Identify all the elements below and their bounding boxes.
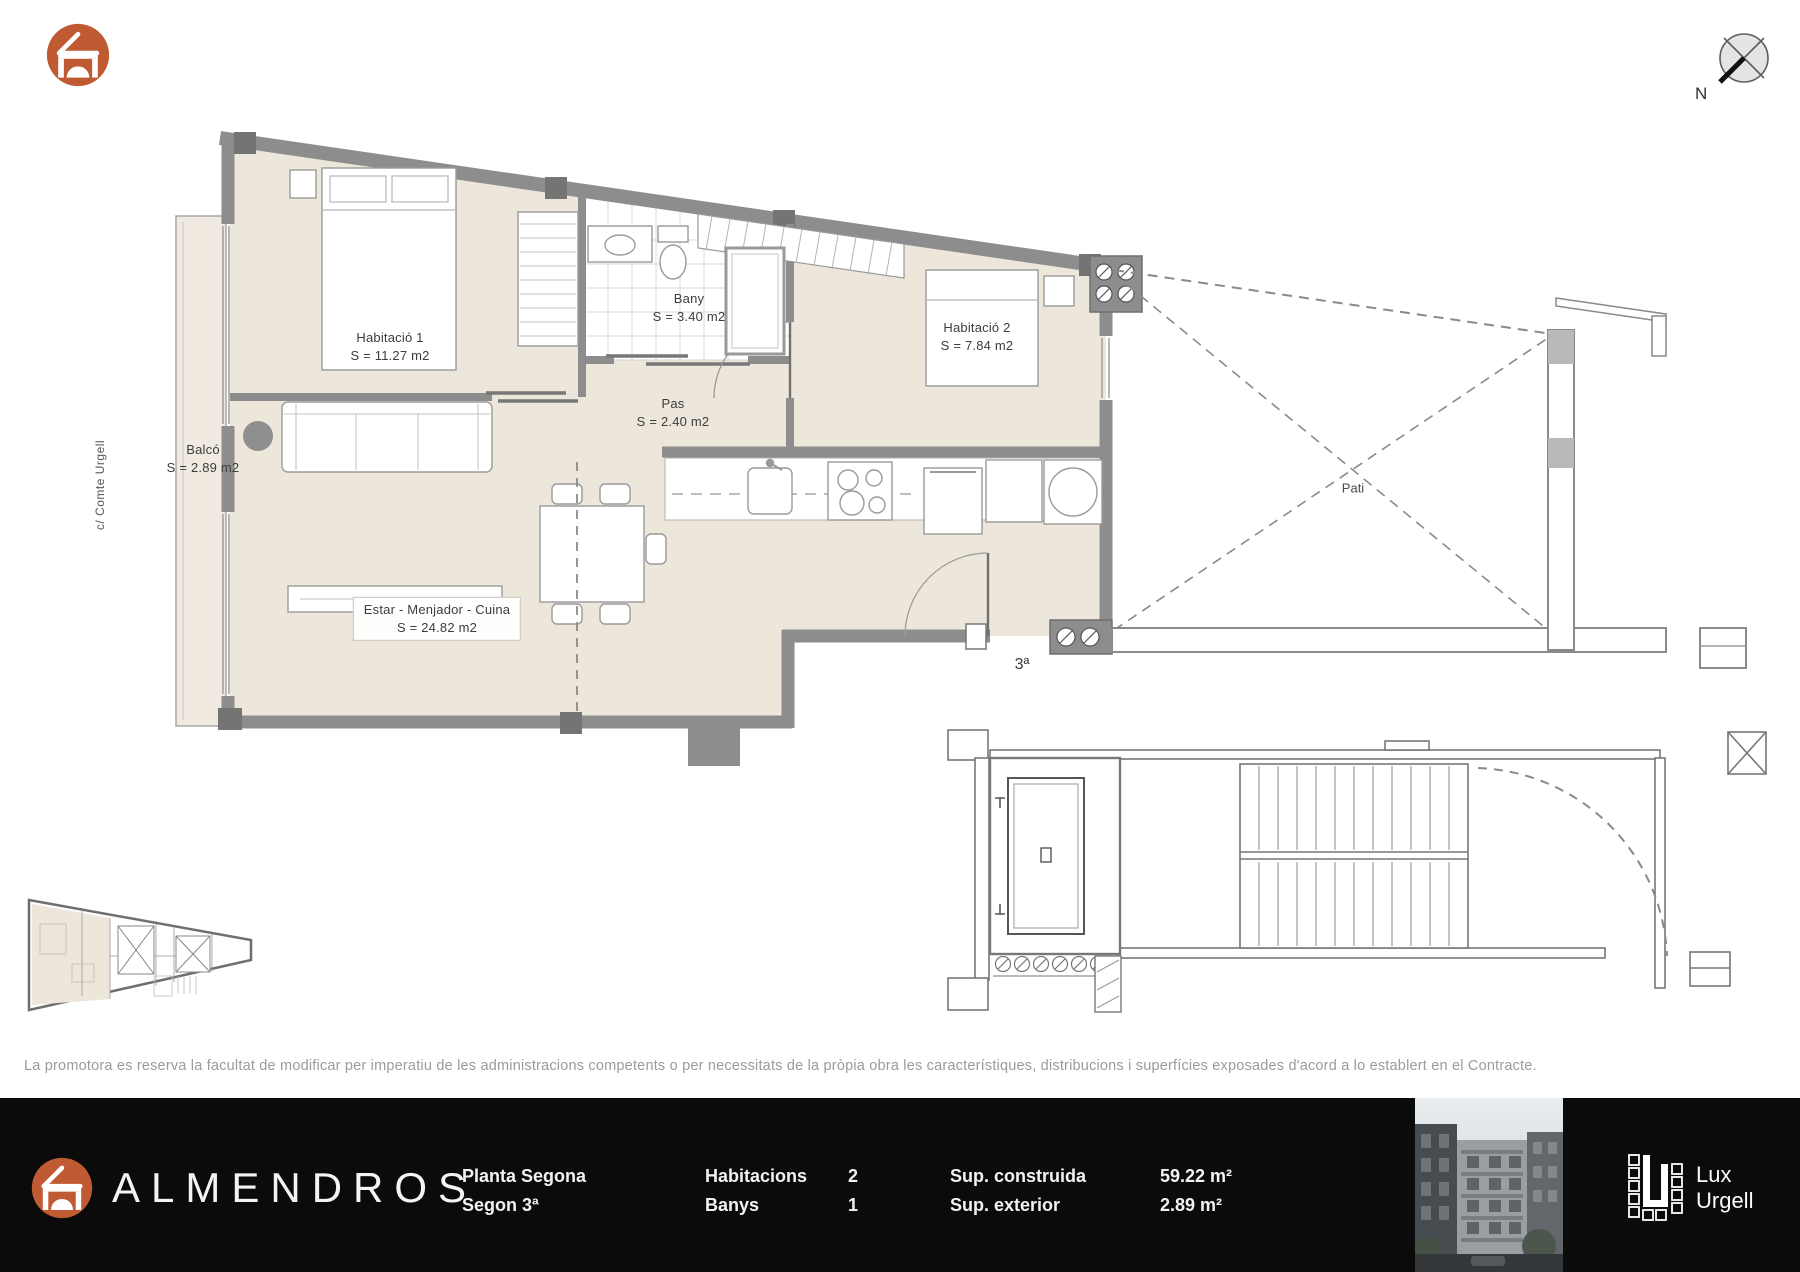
- floor-title: Planta Segona: [462, 1162, 586, 1191]
- room-label-pas: Pas S = 2.40 m2: [637, 395, 710, 431]
- sweep-arc: [1478, 768, 1667, 956]
- lux-urgell-logo: Lux Urgell: [1628, 1148, 1778, 1228]
- vent-shaft: [1090, 256, 1142, 312]
- floorplan-page: N: [0, 0, 1800, 1272]
- elevator: [990, 758, 1120, 954]
- floor-info: Planta Segona Segon 3ª: [462, 1162, 586, 1220]
- room-label-balco: Balcó S = 2.89 m2: [167, 441, 240, 477]
- surface-stats-labels: Sup. construida Sup. exterior: [950, 1162, 1086, 1220]
- lux-urgell-logo-icon: [1628, 1154, 1686, 1222]
- meter-symbols: [993, 957, 1109, 977]
- key-plan-unit-highlight: [32, 904, 110, 1005]
- wardrobe-hab1: [518, 212, 578, 346]
- footer-bar: ALMENDROS Planta Segona Segon 3ª Habitac…: [0, 1098, 1800, 1272]
- room-label-habitacio-2: Habitació 2 S = 7.84 m2: [941, 319, 1014, 355]
- almendros-footer-logo-icon: [30, 1156, 94, 1220]
- lux-urgell-wordmark: Lux Urgell: [1696, 1162, 1753, 1214]
- stairs: [1240, 764, 1468, 948]
- core-fragments: [1690, 732, 1766, 986]
- key-plan: [26, 894, 256, 1016]
- unit-number-label: 3ª: [1015, 656, 1030, 674]
- surface-stats-values: 59.22 m² 2.89 m²: [1160, 1162, 1232, 1220]
- disclaimer-text: La promotora es reserva la facultat de m…: [24, 1058, 1782, 1074]
- patio: [1112, 270, 1746, 668]
- room-stats-labels: Habitacions Banys: [705, 1162, 807, 1220]
- room-label-bany: Bany S = 3.40 m2: [653, 290, 726, 326]
- stair-core-plan: [945, 728, 1768, 1018]
- hatched-pier: [1095, 956, 1121, 1012]
- entry-jamb: [966, 624, 986, 649]
- pati-label: Pati: [1342, 481, 1364, 496]
- room-label-estar-menjador-cuina: Estar - Menjador - Cuina S = 24.82 m2: [353, 597, 521, 641]
- entry-shaft: [1050, 620, 1112, 654]
- room-label-habitacio-1: Habitació 1 S = 11.27 m2: [350, 329, 429, 365]
- room-stats-values: 2 1: [848, 1162, 858, 1220]
- side-table: [243, 421, 273, 451]
- brand-name: ALMENDROS: [112, 1164, 477, 1212]
- unit-title: Segon 3ª: [462, 1191, 586, 1220]
- building-photo: [1415, 1098, 1563, 1272]
- street-label: c/ Comte Urgell: [93, 440, 107, 530]
